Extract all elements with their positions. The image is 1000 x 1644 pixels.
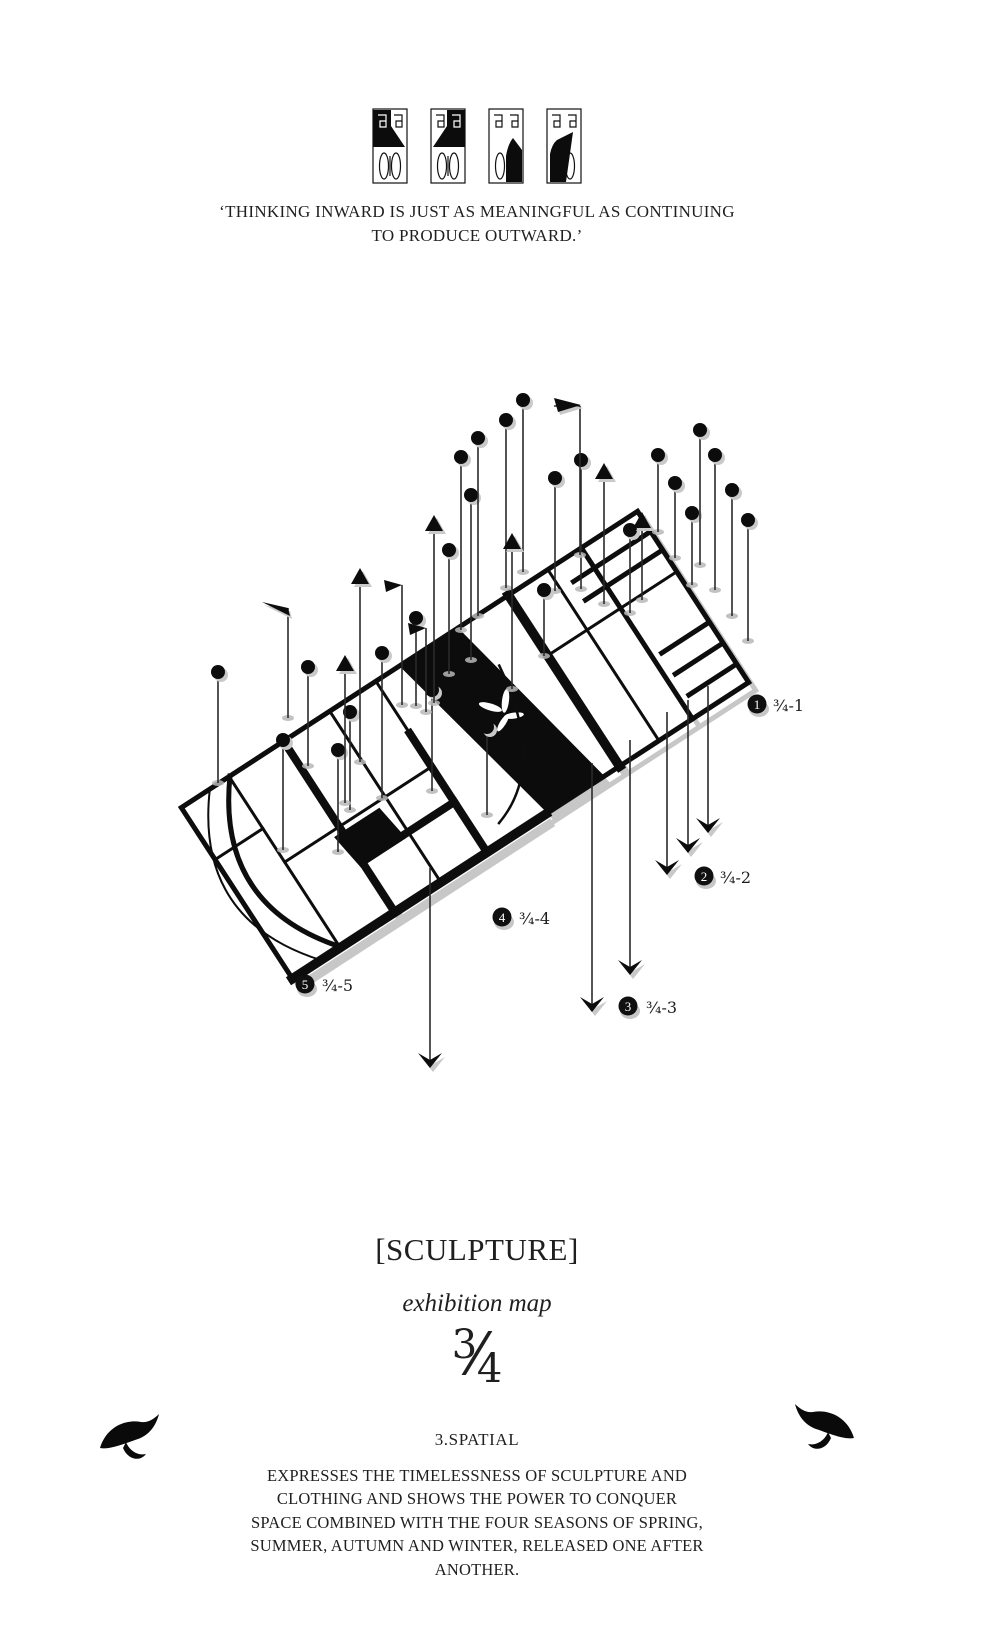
pole-dot (471, 431, 488, 619)
fraction-denominator: 4 (477, 1346, 502, 1392)
pole-flag (262, 602, 294, 721)
pole-dot (651, 448, 668, 535)
poster-page: ‘THINKING INWARD IS JUST AS MEANINGFUL A… (0, 0, 1000, 1644)
svg-text:2: 2 (701, 869, 708, 884)
pole-dot (741, 513, 758, 644)
description-text: EXPRESSES THE TIMELESSNESS OF SCULPTURE … (250, 1464, 705, 1581)
mark-fill (550, 132, 573, 182)
page-subtitle: exhibition map (0, 1290, 954, 1318)
pole-dot (725, 483, 742, 619)
figure-mark-4-icon (543, 106, 585, 186)
svg-text:1: 1 (754, 697, 761, 712)
exhibition-map-diagram: 1 ¾-1 2 ¾-2 3 ¾-3 4 ¾-4 5 ¾-5 (0, 360, 1000, 1100)
map-marker-3: 3 ¾-3 (619, 997, 678, 1020)
bird-swoosh-left-icon (98, 1412, 162, 1468)
pole-dot (708, 448, 725, 593)
quote-text: ‘THINKING INWARD IS JUST AS MEANINGFUL A… (207, 200, 747, 248)
figure-mark-2-icon (427, 106, 469, 186)
pole-dot (693, 423, 710, 568)
mark-fill (506, 138, 522, 182)
svg-text:5: 5 (302, 977, 309, 992)
svg-text:¾-5: ¾-5 (322, 976, 353, 995)
map-marker-4: 4 ¾-4 (493, 908, 551, 931)
svg-text:¾-2: ¾-2 (720, 868, 751, 887)
figure-mark-3-icon (485, 106, 527, 186)
svg-text:¾-1: ¾-1 (773, 696, 804, 715)
svg-text:¾-3: ¾-3 (646, 998, 677, 1017)
logo-marks-row (0, 106, 954, 186)
pole-dot (454, 450, 471, 633)
description-paragraph: EXPRESSES THE TIMELESSNESS OF SCULPTURE … (0, 1464, 954, 1581)
svg-text:3: 3 (625, 999, 632, 1014)
bird-swoosh-right-icon (792, 1402, 856, 1458)
pole-dot (499, 413, 516, 591)
pole-dot (668, 476, 685, 561)
header-quote: ‘THINKING INWARD IS JUST AS MEANINGFUL A… (0, 200, 954, 248)
page-title: [SCULPTURE] (0, 1232, 954, 1268)
figure-mark-1-icon (369, 106, 411, 186)
map-marker-2: 2 ¾-2 (695, 867, 752, 890)
svg-text:¾-4: ¾-4 (519, 909, 550, 928)
map-marker-1: 1 ¾-1 (748, 695, 805, 718)
map-marker-5: 5 ¾-5 (296, 975, 354, 998)
fraction-three-quarters: 3⁄4 (0, 1320, 954, 1392)
svg-text:4: 4 (499, 910, 506, 925)
pole-dot (211, 665, 228, 786)
